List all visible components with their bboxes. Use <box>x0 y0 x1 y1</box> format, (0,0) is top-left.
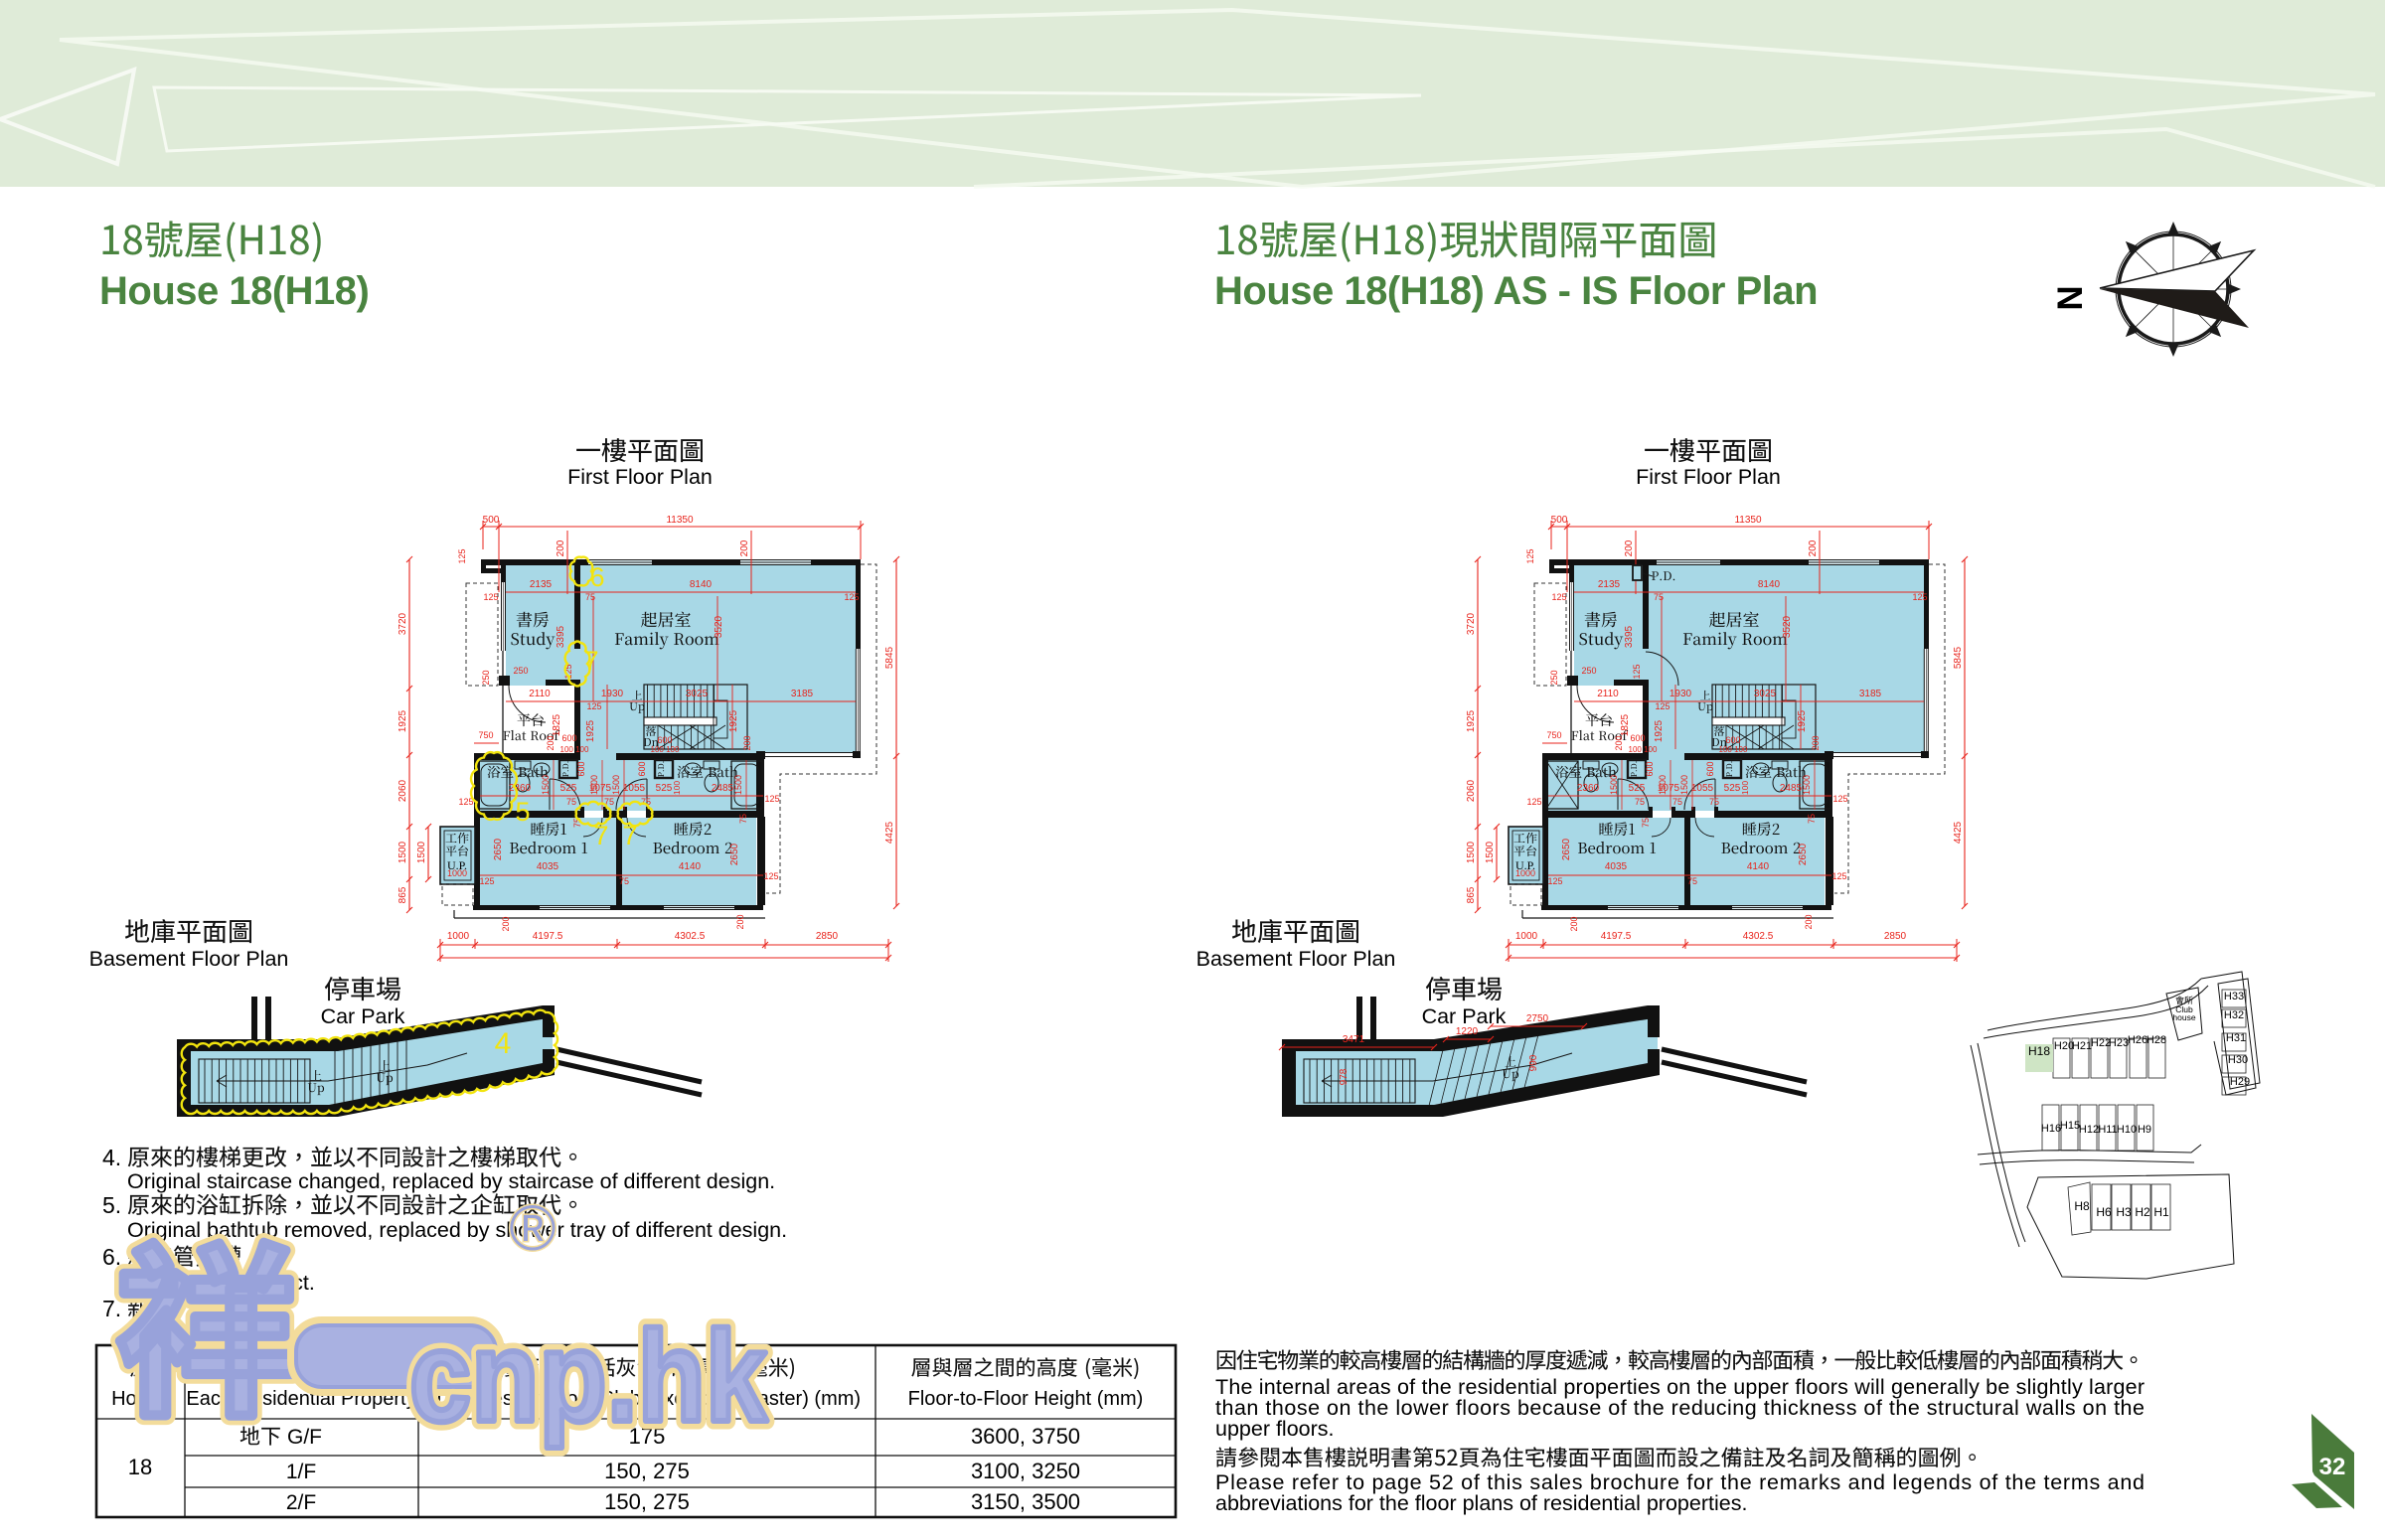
svg-text:®: ® <box>509 1192 556 1264</box>
svg-text:First Floor Plan: First Floor Plan <box>567 465 713 489</box>
svg-text:N: N <box>2051 285 2090 310</box>
svg-text:1825: 1825 <box>552 713 562 736</box>
svg-text:125: 125 <box>1547 876 1562 886</box>
svg-text:100 100: 100 100 <box>1719 745 1748 754</box>
svg-text:200: 200 <box>1808 539 1819 556</box>
svg-text:4197.5: 4197.5 <box>533 931 563 942</box>
svg-text:H30: H30 <box>2228 1054 2248 1066</box>
svg-text:3520: 3520 <box>1782 615 1793 638</box>
svg-text:100 100: 100 100 <box>1629 745 1658 754</box>
svg-text:1825: 1825 <box>1620 713 1631 736</box>
svg-text:2850: 2850 <box>816 931 839 942</box>
svg-text:2650: 2650 <box>493 838 504 860</box>
svg-text:7: 7 <box>583 646 598 676</box>
svg-text:1925: 1925 <box>1466 709 1477 732</box>
svg-text:125: 125 <box>1526 797 1541 807</box>
svg-text:abbreviations for the floor pl: abbreviations for the floor plans of res… <box>1215 1491 1747 1515</box>
svg-text:8140: 8140 <box>690 579 713 590</box>
svg-text:1500: 1500 <box>1802 775 1812 795</box>
svg-text:125: 125 <box>479 876 494 886</box>
svg-text:1500: 1500 <box>611 775 621 795</box>
svg-text:200: 200 <box>1569 916 1579 931</box>
svg-text:3025: 3025 <box>686 689 709 699</box>
svg-text:2650: 2650 <box>1561 838 1572 860</box>
svg-text:1500: 1500 <box>397 841 408 863</box>
svg-text:H9: H9 <box>2138 1124 2151 1136</box>
svg-text:600: 600 <box>1630 733 1645 743</box>
svg-text:865: 865 <box>397 886 408 903</box>
svg-text:250: 250 <box>1581 666 1596 676</box>
svg-text:600: 600 <box>576 761 586 776</box>
svg-text:525: 525 <box>560 783 577 794</box>
svg-text:upper floors.: upper floors. <box>1215 1417 1335 1441</box>
svg-text:7: 7 <box>593 821 608 850</box>
svg-text:250: 250 <box>481 670 491 685</box>
svg-text:250: 250 <box>513 666 528 676</box>
svg-text:H1: H1 <box>2153 1205 2169 1219</box>
svg-text:1500: 1500 <box>1485 841 1496 863</box>
svg-text:H2: H2 <box>2135 1205 2150 1219</box>
svg-text:600: 600 <box>1725 735 1740 745</box>
svg-text:First Floor Plan: First Floor Plan <box>1636 465 1781 489</box>
svg-text:3600, 3750: 3600, 3750 <box>971 1424 1080 1449</box>
svg-text:75: 75 <box>1709 797 1719 807</box>
svg-text:75: 75 <box>1654 592 1664 602</box>
svg-text:H11: H11 <box>2098 1124 2117 1136</box>
svg-text:200: 200 <box>735 914 745 929</box>
svg-text:House 18(H18) AS - IS Floor Pl: House 18(H18) AS - IS Floor Plan <box>1214 269 1818 313</box>
svg-text:2110: 2110 <box>529 689 551 699</box>
svg-text:Floor-to-Floor Height (mm): Floor-to-Floor Height (mm) <box>908 1388 1144 1410</box>
svg-text:75: 75 <box>585 592 595 602</box>
svg-text:H8: H8 <box>2074 1199 2090 1213</box>
svg-text:Basement Floor Plan: Basement Floor Plan <box>1196 947 1396 971</box>
svg-text:125: 125 <box>586 701 601 711</box>
svg-text:3100, 3250: 3100, 3250 <box>971 1459 1080 1483</box>
svg-text:H12: H12 <box>2079 1124 2099 1136</box>
svg-text:1000: 1000 <box>447 868 467 878</box>
svg-text:1/F: 1/F <box>286 1461 316 1483</box>
svg-text:600: 600 <box>637 761 647 776</box>
svg-text:990: 990 <box>1528 1054 1539 1071</box>
svg-text:1000: 1000 <box>1515 868 1535 878</box>
svg-text:1925: 1925 <box>397 709 408 732</box>
svg-text:125: 125 <box>1831 871 1846 881</box>
svg-text:100 100: 100 100 <box>560 745 589 754</box>
svg-text:1500: 1500 <box>541 775 551 795</box>
svg-text:525: 525 <box>1724 783 1741 794</box>
svg-text:125: 125 <box>1912 592 1927 602</box>
svg-text:978: 978 <box>1339 1068 1350 1085</box>
svg-text:H26: H26 <box>2128 1034 2147 1046</box>
svg-text:Car Park: Car Park <box>1422 1004 1507 1028</box>
svg-text:2135: 2135 <box>530 579 553 590</box>
svg-text:525: 525 <box>656 783 673 794</box>
svg-text:125: 125 <box>457 548 467 563</box>
svg-text:H21: H21 <box>2072 1040 2092 1052</box>
svg-text:4035: 4035 <box>1605 861 1628 872</box>
svg-text:75: 75 <box>1672 797 1682 807</box>
svg-text:4035: 4035 <box>537 861 559 872</box>
svg-text:75: 75 <box>1687 876 1697 886</box>
svg-text:200: 200 <box>556 539 566 556</box>
svg-text:4140: 4140 <box>1747 861 1770 872</box>
svg-text:75: 75 <box>738 814 748 824</box>
svg-text:200: 200 <box>1804 914 1814 929</box>
svg-text:1925: 1925 <box>585 719 596 742</box>
svg-text:1930: 1930 <box>1669 689 1692 699</box>
svg-text:150, 275: 150, 275 <box>604 1489 690 1514</box>
svg-text:1500: 1500 <box>416 841 427 863</box>
svg-text:2650: 2650 <box>729 843 740 865</box>
svg-text:1500: 1500 <box>733 775 743 795</box>
svg-text:75: 75 <box>1641 818 1651 828</box>
svg-text:than those on the lower floors: than those on the lower floors because o… <box>1215 1396 2145 1420</box>
svg-text:125: 125 <box>844 592 859 602</box>
svg-text:cnp.hk: cnp.hk <box>409 1304 768 1449</box>
svg-text:H15: H15 <box>2060 1120 2080 1132</box>
svg-text:865: 865 <box>1466 886 1477 903</box>
svg-text:2485: 2485 <box>1780 783 1803 794</box>
svg-text:G/F: G/F <box>287 1426 322 1449</box>
svg-text:100: 100 <box>672 781 682 795</box>
svg-text:3150, 3500: 3150, 3500 <box>971 1489 1080 1514</box>
svg-text:75: 75 <box>1807 814 1817 824</box>
svg-text:2850: 2850 <box>1884 931 1907 942</box>
svg-text:750: 750 <box>478 730 493 740</box>
svg-text:H32: H32 <box>2224 1009 2244 1021</box>
svg-text:1930: 1930 <box>601 689 624 699</box>
svg-text:600: 600 <box>657 735 672 745</box>
svg-text:500: 500 <box>483 515 500 526</box>
svg-text:H3: H3 <box>2116 1205 2132 1219</box>
svg-text:200: 200 <box>1811 735 1821 750</box>
svg-text:H31: H31 <box>2226 1032 2246 1044</box>
svg-text:18: 18 <box>128 1455 152 1479</box>
svg-text:125: 125 <box>1632 664 1642 679</box>
svg-text:2650: 2650 <box>1798 843 1809 865</box>
svg-text:1075: 1075 <box>1658 783 1680 794</box>
svg-text:3720: 3720 <box>1466 612 1477 635</box>
svg-text:600: 600 <box>1705 761 1715 776</box>
svg-text:4302.5: 4302.5 <box>675 931 706 942</box>
svg-text:2750: 2750 <box>1526 1013 1549 1024</box>
svg-text:32: 32 <box>2319 1454 2346 1480</box>
svg-text:4425: 4425 <box>884 821 895 844</box>
svg-text:Car Park: Car Park <box>321 1004 405 1028</box>
svg-text:125: 125 <box>1832 794 1847 804</box>
svg-text:3471: 3471 <box>1343 1034 1365 1045</box>
svg-text:4425: 4425 <box>1953 821 1964 844</box>
svg-text:200: 200 <box>742 735 752 750</box>
svg-text:1055: 1055 <box>623 783 646 794</box>
svg-text:8140: 8140 <box>1758 579 1781 590</box>
svg-text:600: 600 <box>561 733 576 743</box>
svg-text:75: 75 <box>1635 797 1645 807</box>
svg-text:1500: 1500 <box>1466 841 1477 863</box>
svg-text:3720: 3720 <box>397 612 408 635</box>
svg-text:H18: H18 <box>2028 1044 2050 1058</box>
svg-text:H10: H10 <box>2117 1124 2137 1136</box>
svg-text:3185: 3185 <box>791 689 814 699</box>
svg-text:4197.5: 4197.5 <box>1601 931 1632 942</box>
svg-text:house: house <box>2172 1012 2195 1022</box>
svg-text:3395: 3395 <box>1624 625 1635 648</box>
svg-text:1925: 1925 <box>1797 709 1808 732</box>
svg-text:200: 200 <box>1624 539 1635 556</box>
svg-text:75: 75 <box>566 797 576 807</box>
svg-text:2/F: 2/F <box>286 1491 316 1514</box>
svg-text:3395: 3395 <box>556 625 566 648</box>
svg-text:7: 7 <box>622 821 637 850</box>
svg-text:2360: 2360 <box>509 783 532 794</box>
svg-text:H28: H28 <box>2146 1034 2166 1046</box>
svg-text:100 100: 100 100 <box>651 745 680 754</box>
svg-text:2060: 2060 <box>1466 779 1477 802</box>
svg-text:11350: 11350 <box>1734 515 1762 526</box>
svg-text:500: 500 <box>1551 515 1568 526</box>
svg-text:2485: 2485 <box>712 783 734 794</box>
svg-text:2060: 2060 <box>397 779 408 802</box>
svg-text:5845: 5845 <box>884 646 895 669</box>
svg-text:5845: 5845 <box>1953 646 1964 669</box>
svg-text:75: 75 <box>619 876 629 886</box>
svg-text:4140: 4140 <box>679 861 702 872</box>
svg-text:250: 250 <box>1549 670 1559 685</box>
svg-text:200: 200 <box>1614 735 1624 750</box>
svg-text:1000: 1000 <box>447 931 470 942</box>
svg-text:1925: 1925 <box>1654 719 1665 742</box>
svg-text:525: 525 <box>1629 783 1646 794</box>
svg-text:3520: 3520 <box>714 615 724 638</box>
svg-text:150, 275: 150, 275 <box>604 1459 690 1483</box>
svg-text:200: 200 <box>501 916 511 931</box>
svg-text:4302.5: 4302.5 <box>1743 931 1774 942</box>
svg-text:6: 6 <box>589 562 604 592</box>
svg-text:125: 125 <box>1551 592 1566 602</box>
svg-text:1925: 1925 <box>728 709 739 732</box>
svg-text:125: 125 <box>763 871 778 881</box>
svg-text:750: 750 <box>1546 730 1561 740</box>
svg-text:2110: 2110 <box>1597 689 1619 699</box>
svg-text:600: 600 <box>1645 761 1655 776</box>
svg-text:125: 125 <box>1525 548 1535 563</box>
svg-text:2360: 2360 <box>1577 783 1600 794</box>
svg-text:125: 125 <box>764 794 779 804</box>
svg-text:3185: 3185 <box>1859 689 1882 699</box>
svg-text:1055: 1055 <box>1691 783 1714 794</box>
svg-text:1500: 1500 <box>1609 775 1619 795</box>
svg-text:H33: H33 <box>2224 991 2244 1002</box>
svg-text:100: 100 <box>1740 781 1750 795</box>
svg-text:200: 200 <box>739 539 750 556</box>
svg-text:200: 200 <box>546 735 556 750</box>
svg-text:4.: 4. <box>102 1145 121 1170</box>
svg-text:125: 125 <box>483 592 498 602</box>
svg-text:1000: 1000 <box>1515 931 1538 942</box>
svg-text:Original staircase changed, re: Original staircase changed, replaced by … <box>127 1169 775 1193</box>
svg-text:5.: 5. <box>102 1192 121 1218</box>
svg-text:5: 5 <box>515 797 530 827</box>
svg-text:2135: 2135 <box>1598 579 1621 590</box>
svg-text:1500: 1500 <box>1679 775 1689 795</box>
svg-text:4: 4 <box>495 1027 512 1060</box>
svg-text:H23: H23 <box>2109 1037 2129 1049</box>
svg-text:Basement Floor Plan: Basement Floor Plan <box>89 947 289 971</box>
svg-text:H16: H16 <box>2041 1123 2061 1135</box>
svg-text:H29: H29 <box>2230 1076 2250 1088</box>
svg-text:1220: 1220 <box>1456 1026 1479 1037</box>
svg-text:H6: H6 <box>2096 1205 2112 1219</box>
svg-text:125: 125 <box>1655 701 1669 711</box>
svg-text:House 18(H18): House 18(H18) <box>99 269 369 313</box>
svg-text:3025: 3025 <box>1754 689 1777 699</box>
svg-text:11350: 11350 <box>666 515 694 526</box>
svg-text:1075: 1075 <box>589 783 612 794</box>
